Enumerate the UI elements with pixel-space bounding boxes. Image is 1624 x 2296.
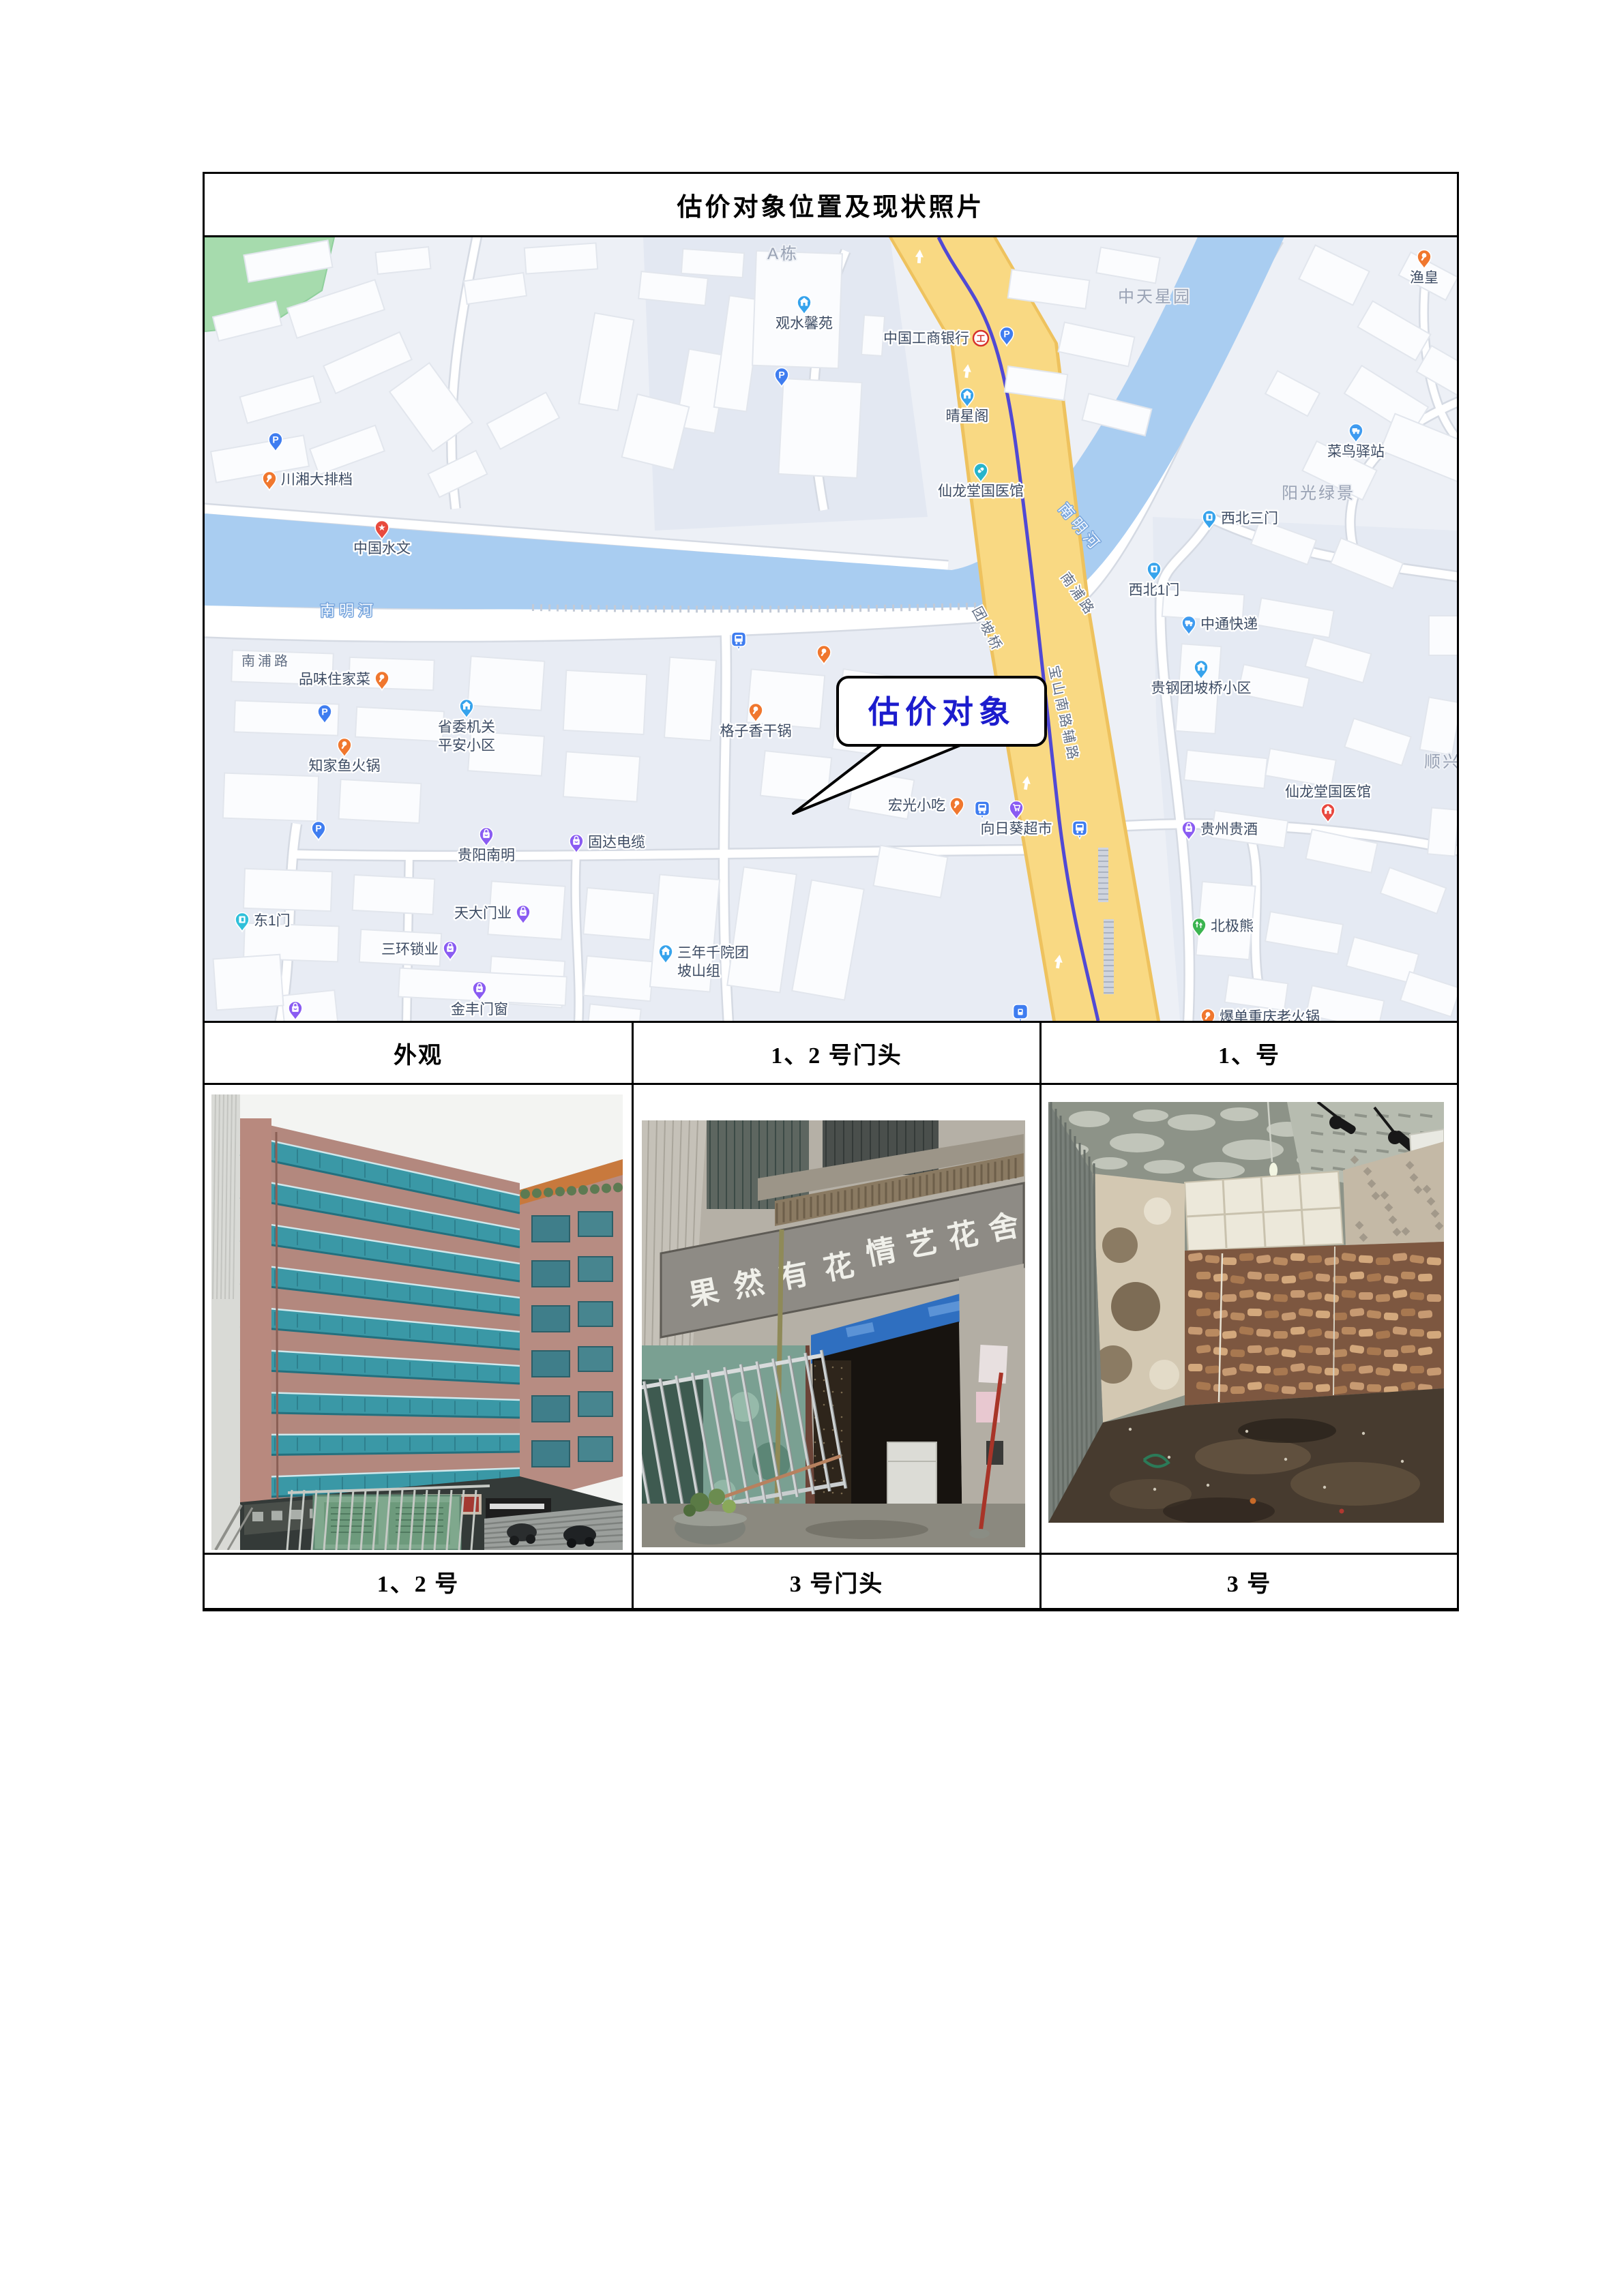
svg-text:花: 花 — [945, 1217, 981, 1255]
col-header: 外观 — [394, 1037, 443, 1070]
poi-label: 省委机关 — [438, 719, 495, 735]
poi-label: 贵州贵酒 — [1200, 822, 1258, 837]
map-area-label: 阳光绿景 — [1282, 484, 1355, 503]
poi-label: 三环锁业 — [381, 942, 439, 957]
poi-label: 金丰门窗 — [451, 1002, 508, 1017]
svg-text:P: P — [272, 434, 278, 445]
location-map: A栋中天星园阳光绿景顺兴南浦路南浦路宝山南路辅路团坡桥南明河南明河P川湘大排档★… — [205, 237, 1457, 1021]
poi-label: 爆单重庆老火锅 — [1220, 1009, 1320, 1021]
svg-text:★: ★ — [378, 522, 386, 533]
svg-text:艺: 艺 — [904, 1225, 941, 1263]
poi-label: 知家鱼火锅 — [309, 758, 381, 774]
poi-label: 菜鸟驿站 — [1327, 444, 1385, 460]
photo-building-exterior — [211, 1094, 623, 1550]
header-cell-3: 1、号 — [1039, 1021, 1459, 1085]
table-title-cell: 估价对象位置及现状照片 — [203, 172, 1459, 237]
photo-caption: 1、2 号 — [377, 1565, 460, 1598]
svg-text:P: P — [1003, 329, 1009, 340]
poi-爆单重庆老火锅 — [1201, 1009, 1215, 1022]
col-header: 1、2 号门头 — [771, 1037, 902, 1070]
poi-fuel — [1014, 1004, 1028, 1021]
header-cell-2: 1、2 号门头 — [632, 1021, 1042, 1085]
svg-text:P: P — [778, 370, 784, 381]
table-bottom-border — [203, 1608, 1459, 1611]
photo-cell-storefront: 果然有花情艺花舍 — [632, 1083, 1042, 1555]
poi-label: 品味住家菜 — [299, 672, 370, 687]
caption-cell-3: 3 号 — [1039, 1553, 1459, 1611]
poi-label: 北极熊 — [1211, 919, 1254, 934]
caption-cell-1: 1、2 号 — [203, 1553, 634, 1611]
poi-中国工商银行: 工 — [973, 331, 988, 346]
poi-label: 天大门业 — [454, 906, 512, 921]
svg-text:花: 花 — [821, 1249, 857, 1287]
poi-label: 渔皇 — [1410, 270, 1438, 286]
poi-label: 中通快递 — [1200, 616, 1258, 632]
poi-label: 西北三门 — [1221, 511, 1278, 526]
svg-text:然: 然 — [731, 1266, 767, 1304]
svg-text:情: 情 — [863, 1233, 900, 1271]
svg-text:P: P — [321, 706, 327, 717]
photo-interior — [1048, 1102, 1444, 1523]
poi-label: 观水馨苑 — [776, 316, 833, 331]
map-river-label: 南明河 — [320, 602, 377, 619]
poi-label: 贵钢团坡桥小区 — [1151, 681, 1252, 696]
poi-label: 三年千院团 — [677, 945, 749, 961]
poi-label: 中国工商银行 — [883, 331, 969, 346]
poi-label: 宏光小吃 — [888, 798, 945, 814]
photo-caption: 3 号门头 — [790, 1565, 884, 1598]
map-road-label: 南浦路 — [241, 653, 291, 669]
photo-cell-exterior — [203, 1083, 634, 1555]
svg-text:果: 果 — [686, 1274, 722, 1312]
photo-cell-interior — [1039, 1083, 1459, 1555]
map-canvas: A栋中天星园阳光绿景顺兴南浦路南浦路宝山南路辅路团坡桥南明河南明河P川湘大排档★… — [205, 237, 1457, 1021]
header-cell-1: 外观 — [203, 1021, 634, 1085]
poi-label: 东1门 — [254, 913, 291, 929]
poi-label: 向日葵超市 — [981, 821, 1052, 837]
photo-storefront: 果然有花情艺花舍 — [642, 1120, 1025, 1547]
caption-cell-2: 3 号门头 — [632, 1553, 1042, 1611]
col-header: 1、号 — [1218, 1037, 1280, 1070]
poi-label: 中国水文 — [353, 541, 411, 556]
page-title: 估价对象位置及现状照片 — [677, 186, 985, 223]
document-page: 估价对象位置及现状照片 A栋中天星园阳光绿景顺兴南浦路南浦路宝山南路辅路团坡桥南… — [0, 0, 1624, 2296]
map-area-label: A栋 — [767, 245, 799, 263]
svg-text:P: P — [315, 823, 321, 834]
svg-text:工: 工 — [976, 333, 985, 344]
poi-label: 格子香干锅 — [720, 724, 792, 739]
map-area-label: 顺兴 — [1424, 753, 1457, 771]
poi-label: 固达电缆 — [588, 835, 645, 850]
svg-text:舍: 舍 — [986, 1208, 1022, 1247]
poi-label: 仙龙堂国医馆 — [938, 483, 1024, 499]
svg-text:坡山组: 坡山组 — [677, 964, 720, 979]
poi-label: 晴星阁 — [946, 408, 989, 424]
callout-text: 估价对象 — [868, 694, 1016, 730]
photo-caption: 3 号 — [1227, 1565, 1272, 1598]
poi-label: 川湘大排档 — [281, 472, 353, 488]
svg-text:平安小区: 平安小区 — [438, 738, 495, 754]
poi-label: 仙龙堂国医馆 — [1285, 784, 1371, 800]
poi-label: 西北1门 — [1129, 582, 1180, 598]
map-area-label: 中天星园 — [1118, 288, 1192, 306]
map-cell: A栋中天星园阳光绿景顺兴南浦路南浦路宝山南路辅路团坡桥南明河南明河P川湘大排档★… — [203, 235, 1459, 1023]
poi-label: 贵阳南明 — [458, 848, 515, 863]
